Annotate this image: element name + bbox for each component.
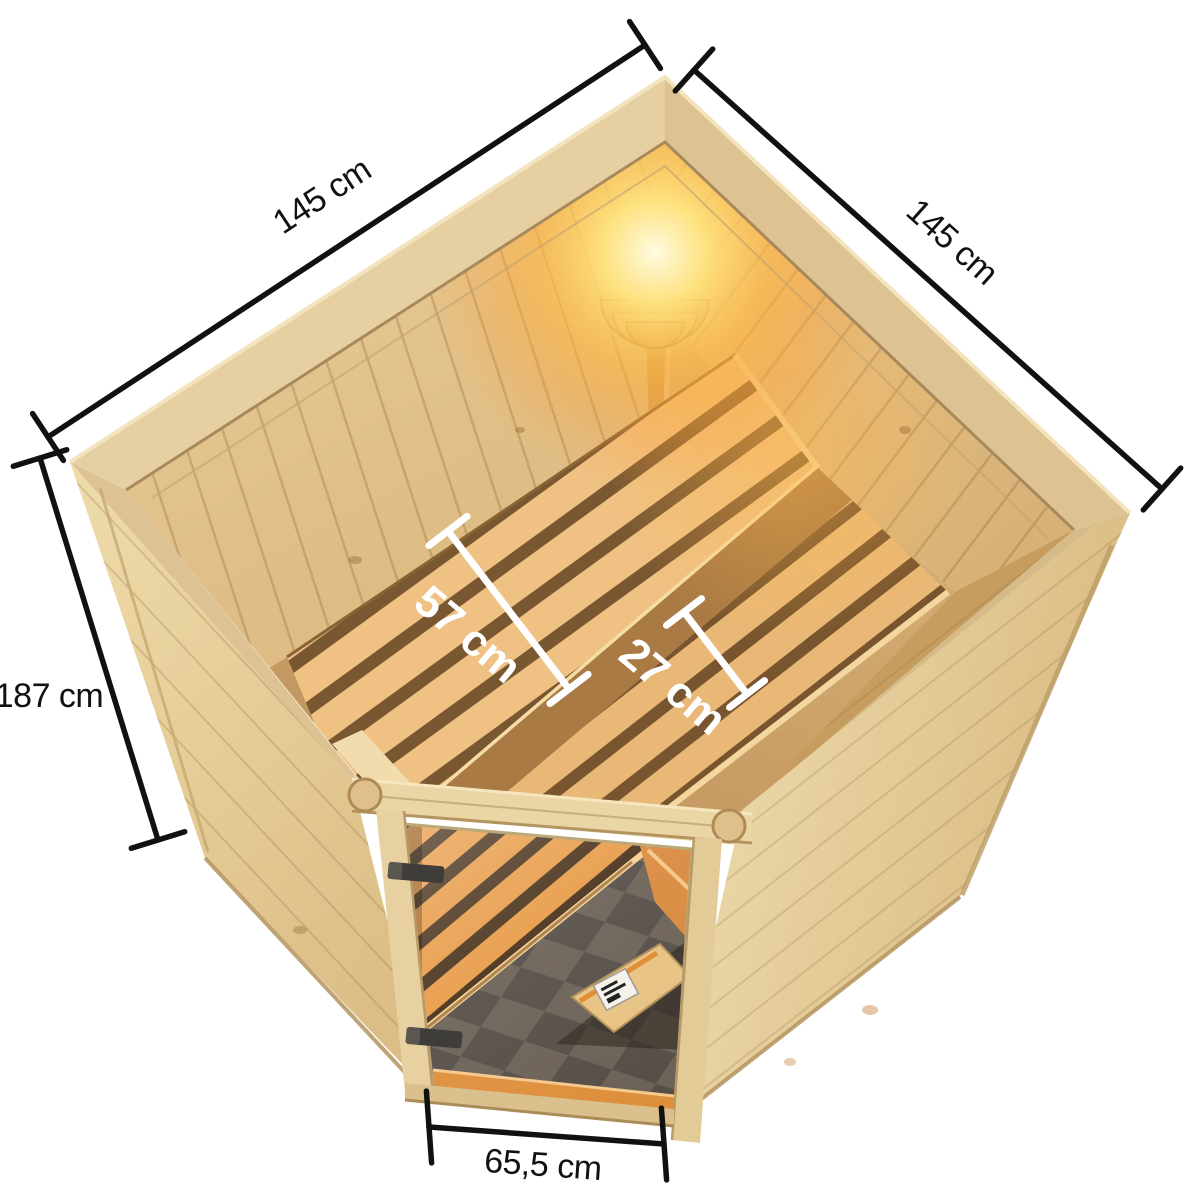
door-dowel-left xyxy=(349,779,381,811)
door-glass xyxy=(404,824,692,1120)
dim-label-right-width: 145 cm xyxy=(899,192,1005,293)
door-dowel-right xyxy=(713,810,745,842)
dim-label-left-width: 145 cm xyxy=(266,150,378,241)
dim-label-height: 187 cm xyxy=(0,677,103,715)
sauna-dimension-illustration: 145 cm 145 cm 187 cm 65,5 cm 57 cm 27 cm xyxy=(0,0,1200,1200)
sauna-dimension-figure: 145 cm 145 cm 187 cm 65,5 cm 57 cm 27 cm xyxy=(0,0,1200,1200)
glass-sheen xyxy=(404,824,692,1120)
door-assembly xyxy=(349,779,752,1143)
dim-label-door-width: 65,5 cm xyxy=(483,1142,603,1188)
